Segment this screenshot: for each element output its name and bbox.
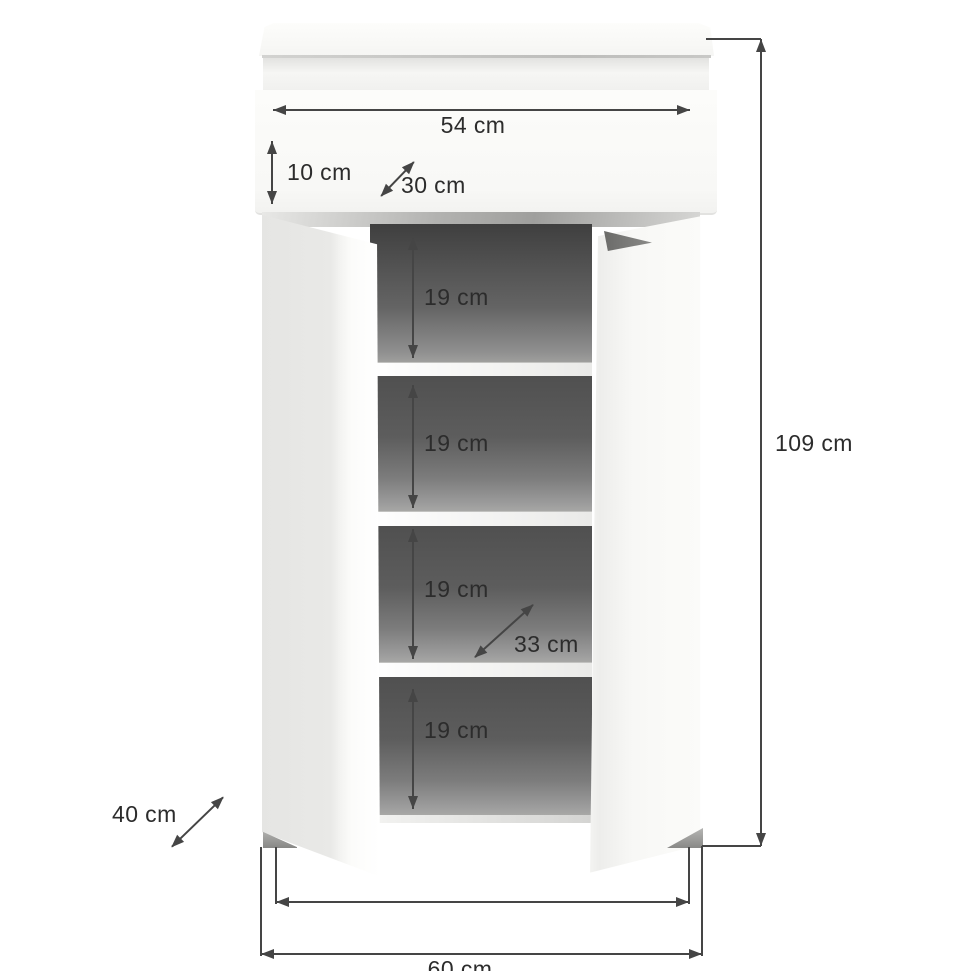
- cabinet-top-recess: [263, 58, 709, 91]
- left-door-open: [262, 213, 380, 878]
- shelf-2: [370, 512, 592, 526]
- cabinet-bottom-edge: [370, 815, 592, 823]
- dimension-arrow-compartment-1: [412, 237, 414, 358]
- dimension-connector-top: [706, 38, 761, 40]
- dimension-arrow-total-height: [760, 39, 762, 846]
- dimension-arrow-base-depth: [171, 797, 223, 848]
- dimension-label-compartment-1: 19 cm: [424, 284, 489, 310]
- extension-line-outer-left: [260, 847, 262, 956]
- dimension-label-shelf-depth: 33 cm: [514, 631, 579, 657]
- shelf-3: [370, 663, 592, 677]
- extension-line-outer-right: [701, 846, 703, 956]
- dimension-connector-bottom: [702, 845, 761, 847]
- dimension-arrow-drawer-height: [271, 141, 273, 204]
- extension-line-inner-left: [275, 847, 277, 904]
- right-door-open: [588, 215, 701, 874]
- dimension-arrow-top-width: [273, 109, 690, 111]
- dimension-arrow-compartment-3: [412, 529, 414, 659]
- dimension-diagram: 54 cm 10 cm 30 cm 19 cm 19 cm 19 cm 19 c…: [0, 0, 970, 971]
- dimension-label-compartment-4: 19 cm: [424, 717, 489, 743]
- dimension-label-drawer-height: 10 cm: [287, 159, 352, 185]
- dimension-label-total-height: 109 cm: [775, 430, 853, 456]
- cabinet-top-panel: [259, 23, 714, 56]
- dimension-label-top-depth: 30 cm: [401, 172, 466, 198]
- dimension-label-top-width: 54 cm: [373, 112, 573, 138]
- dimension-label-base-depth: 40 cm: [112, 801, 177, 827]
- dimension-label-compartment-2: 19 cm: [424, 430, 489, 456]
- extension-line-inner-right: [688, 847, 690, 904]
- dimension-arrow-inner-width: [276, 901, 689, 903]
- dimension-label-total-width: 60 cm: [380, 956, 540, 971]
- compartment-4: [370, 677, 592, 815]
- dimension-arrow-compartment-2: [412, 385, 414, 508]
- dimension-label-compartment-3: 19 cm: [424, 576, 489, 602]
- shelf-1: [370, 363, 592, 376]
- dimension-arrow-total-width: [261, 953, 702, 955]
- dimension-arrow-compartment-4: [412, 689, 414, 809]
